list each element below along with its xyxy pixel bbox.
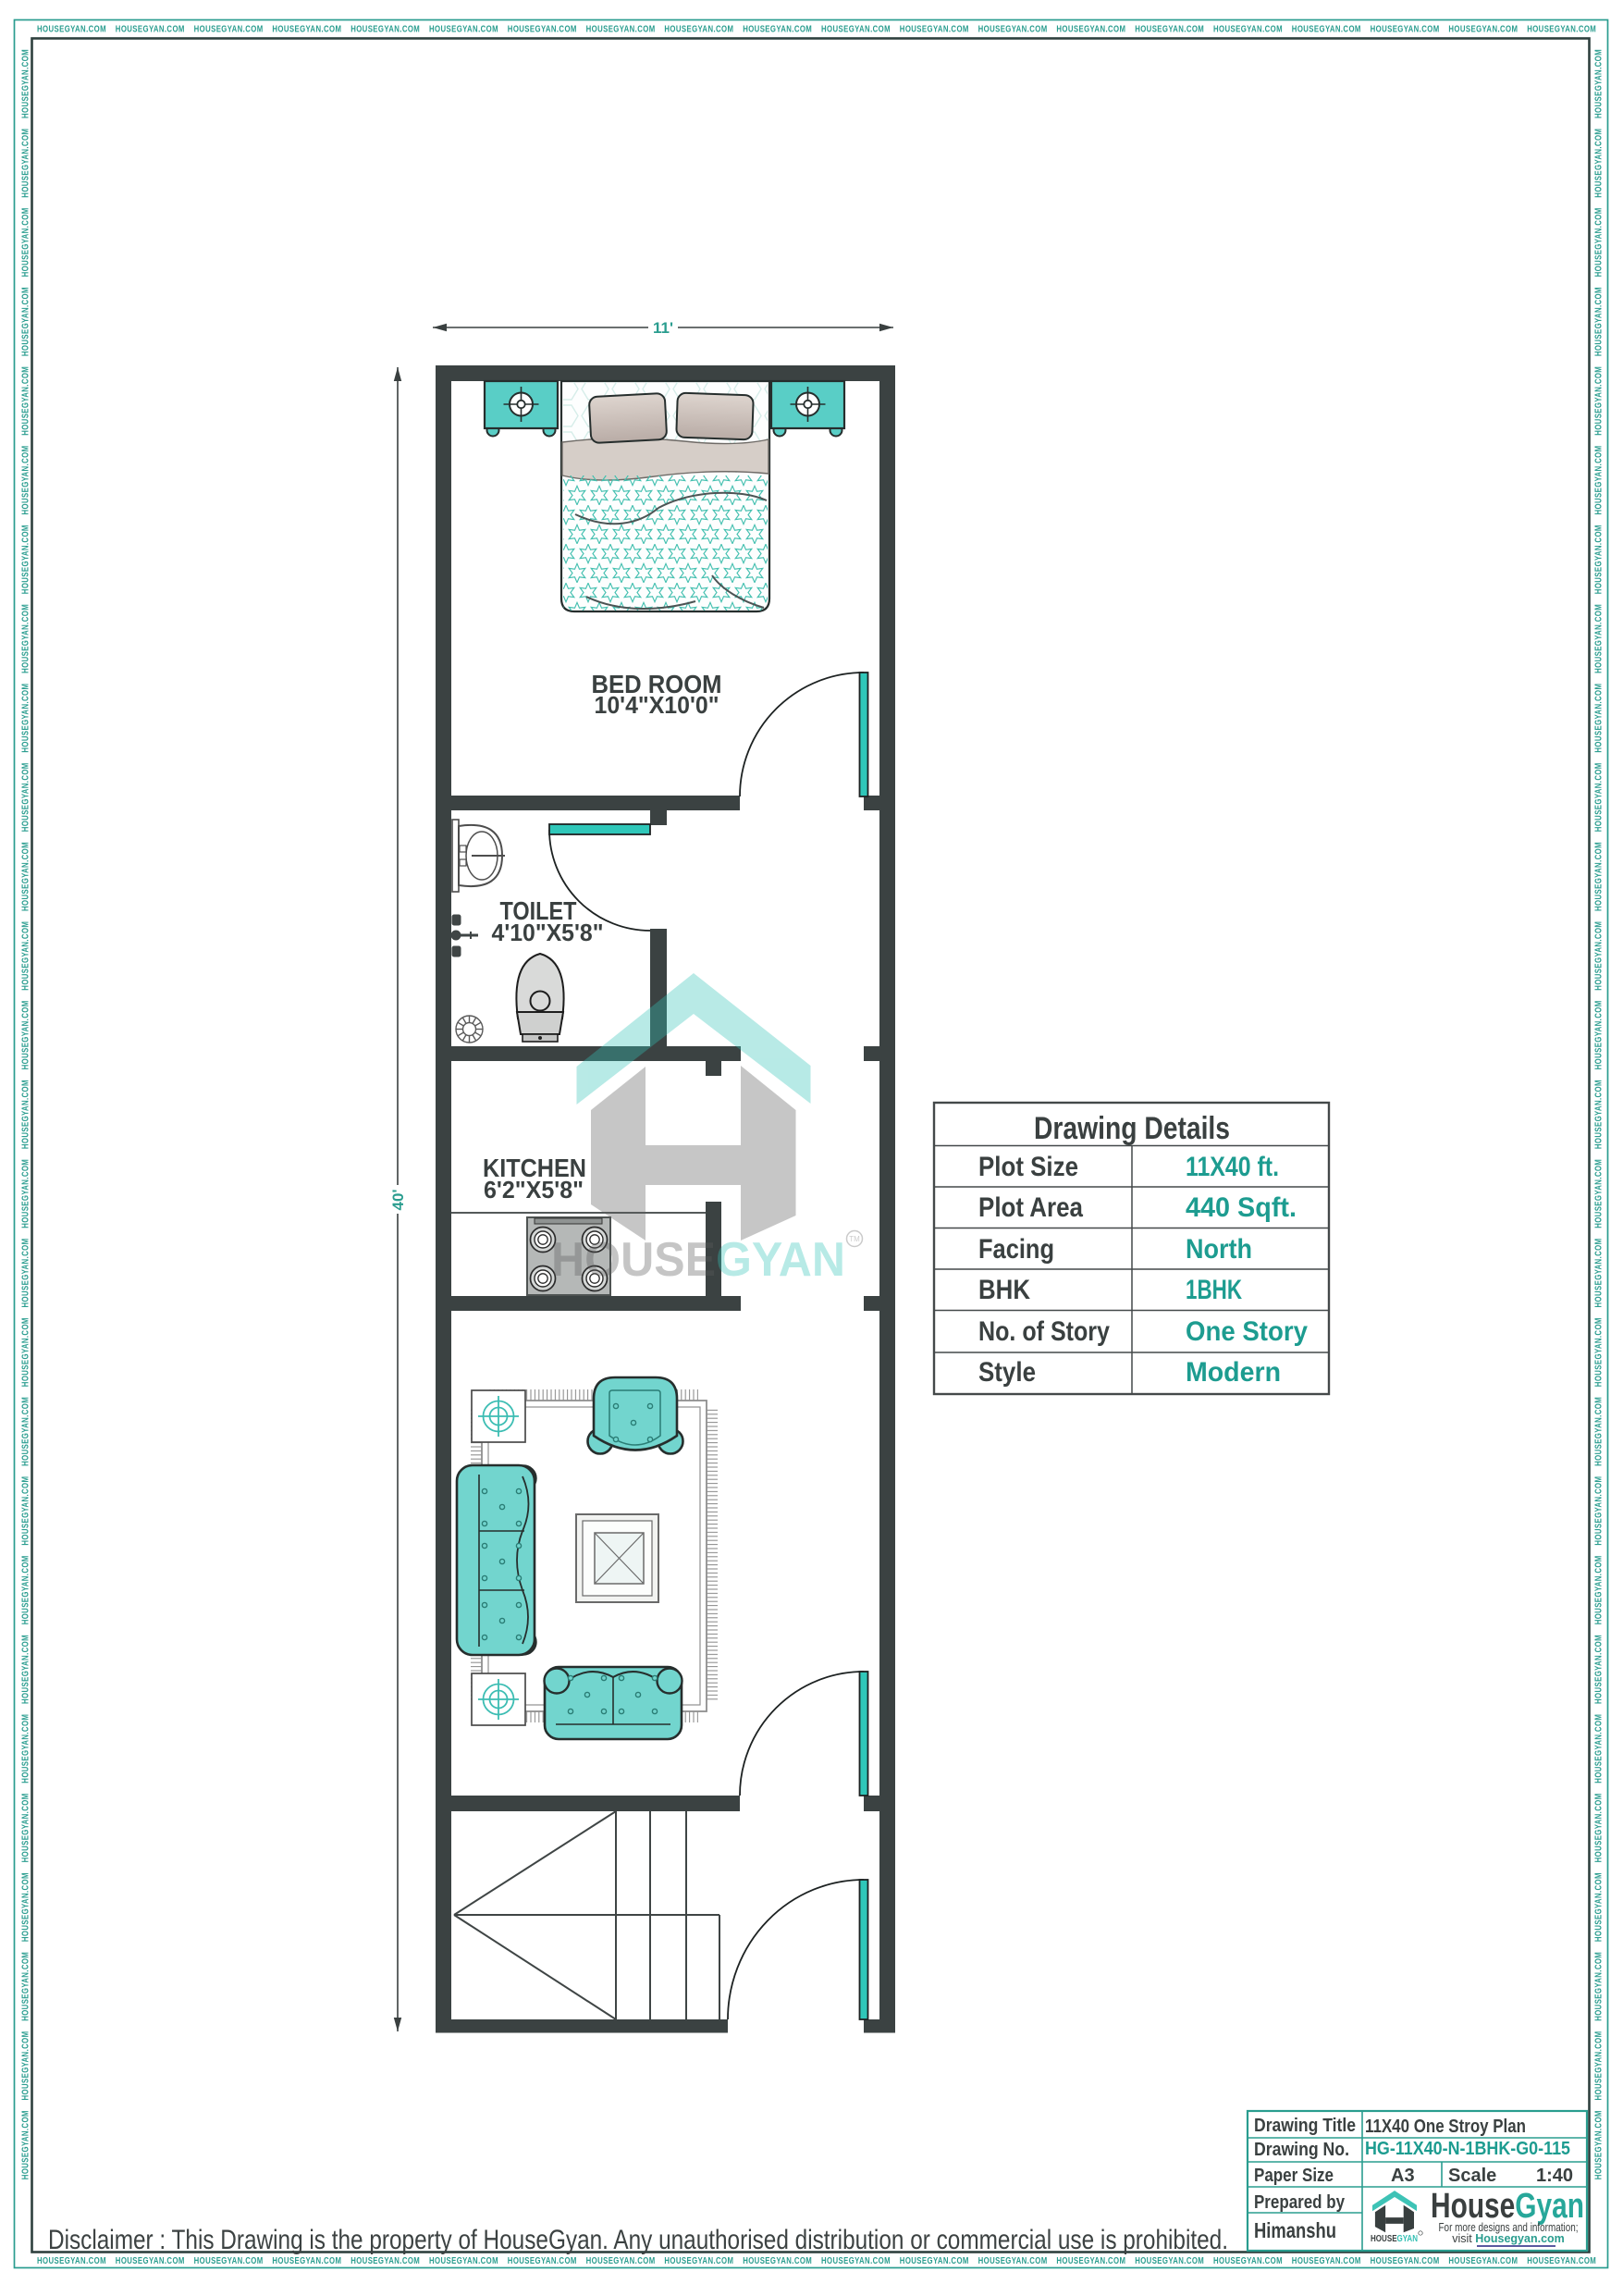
svg-text:HOUSEGYAN.COM: HOUSEGYAN.COM — [37, 2256, 106, 2266]
svg-text:Himanshu: Himanshu — [1254, 2218, 1336, 2242]
svg-text:HOUSEGYAN.COM: HOUSEGYAN.COM — [21, 1317, 31, 1387]
svg-text:Drawing Details: Drawing Details — [1034, 1111, 1230, 1146]
svg-text:HOUSEGYAN.COM: HOUSEGYAN.COM — [1135, 25, 1204, 35]
svg-text:HOUSEGYAN.COM: HOUSEGYAN.COM — [1371, 25, 1440, 35]
svg-text:HOUSEGYAN.COM: HOUSEGYAN.COM — [1594, 1952, 1605, 2021]
svg-text:HOUSEGYAN.COM: HOUSEGYAN.COM — [1594, 604, 1605, 673]
svg-text:HOUSEGYAN.COM: HOUSEGYAN.COM — [37, 25, 106, 35]
svg-text:HOUSEGYAN.COM: HOUSEGYAN.COM — [1594, 49, 1605, 118]
svg-text:HOUSEGYAN.COM: HOUSEGYAN.COM — [1594, 2031, 1605, 2101]
svg-text:HOUSEGYAN.COM: HOUSEGYAN.COM — [21, 1080, 31, 1149]
svg-text:HOUSEGYAN.COM: HOUSEGYAN.COM — [1594, 207, 1605, 277]
svg-text:HOUSEGYAN.COM: HOUSEGYAN.COM — [586, 2256, 656, 2266]
svg-text:HOUSEGYAN.COM: HOUSEGYAN.COM — [1594, 1080, 1605, 1149]
svg-text:HOUSEGYAN.COM: HOUSEGYAN.COM — [1594, 2110, 1605, 2179]
svg-text:HOUSEGYAN.COM: HOUSEGYAN.COM — [1594, 1872, 1605, 1942]
svg-text:HOUSEGYAN.COM: HOUSEGYAN.COM — [1056, 2256, 1125, 2266]
svg-text:North: North — [1186, 1234, 1252, 1265]
svg-text:HOUSEGYAN.COM: HOUSEGYAN.COM — [1371, 2256, 1440, 2266]
svg-text:Scale: Scale — [1448, 2166, 1496, 2186]
svg-text:HOUSEGYAN.COM: HOUSEGYAN.COM — [743, 25, 812, 35]
svg-text:HOUSEGYAN.COM: HOUSEGYAN.COM — [1594, 1159, 1605, 1228]
svg-text:HOUSEGYAN.COM: HOUSEGYAN.COM — [21, 1476, 31, 1546]
svg-text:HouseGyan: HouseGyan — [1431, 2187, 1584, 2226]
svg-text:HOUSEGYAN.COM: HOUSEGYAN.COM — [1594, 366, 1605, 436]
svg-text:11X40 ft.: 11X40 ft. — [1186, 1152, 1279, 1182]
svg-text:HOUSEGYAN.COM: HOUSEGYAN.COM — [978, 2256, 1048, 2266]
svg-text:HOUSEGYAN.COM: HOUSEGYAN.COM — [21, 762, 31, 832]
svg-text:Plot Area: Plot Area — [978, 1192, 1083, 1223]
svg-text:1BHK: 1BHK — [1186, 1275, 1242, 1305]
svg-text:HOUSEGYAN.COM: HOUSEGYAN.COM — [350, 25, 420, 35]
svg-text:HOUSEGYAN.COM: HOUSEGYAN.COM — [21, 129, 31, 198]
svg-text:HOUSEGYAN.COM: HOUSEGYAN.COM — [664, 2256, 733, 2266]
svg-text:HOUSEGYAN.COM: HOUSEGYAN.COM — [194, 25, 264, 35]
svg-text:HOUSEGYAN.COM: HOUSEGYAN.COM — [21, 1635, 31, 1704]
svg-text:HOUSEGYAN.COM: HOUSEGYAN.COM — [350, 2256, 420, 2266]
svg-text:HOUSEGYAN.COM: HOUSEGYAN.COM — [21, 2110, 31, 2179]
svg-text:Prepared by: Prepared by — [1254, 2192, 1346, 2213]
svg-text:HOUSEGYAN.COM: HOUSEGYAN.COM — [586, 25, 656, 35]
svg-text:HOUSEGYAN.COM: HOUSEGYAN.COM — [116, 25, 185, 35]
svg-text:HOUSEGYAN.COM: HOUSEGYAN.COM — [21, 1793, 31, 1862]
svg-text:HOUSEGYAN.COM: HOUSEGYAN.COM — [21, 446, 31, 515]
svg-text:HOUSEGYAN.COM: HOUSEGYAN.COM — [1292, 2256, 1361, 2266]
svg-text:1:40: 1:40 — [1536, 2166, 1573, 2186]
svg-text:HOUSEGYAN.COM: HOUSEGYAN.COM — [21, 366, 31, 436]
svg-text:6'2"X5'8": 6'2"X5'8" — [484, 1176, 584, 1204]
svg-text:HOUSEGYAN.COM: HOUSEGYAN.COM — [664, 25, 733, 35]
svg-text:HOUSEGYAN: HOUSEGYAN — [1371, 2233, 1418, 2244]
svg-text:HOUSEGYAN.COM: HOUSEGYAN.COM — [1594, 1239, 1605, 1308]
svg-text:40': 40' — [389, 1190, 407, 1211]
svg-text:HG-11X40-N-1BHK-G0-115: HG-11X40-N-1BHK-G0-115 — [1365, 2139, 1570, 2159]
svg-text:Style: Style — [978, 1357, 1036, 1388]
svg-text:HOUSEGYAN.COM: HOUSEGYAN.COM — [21, 1872, 31, 1942]
svg-text:HOUSEGYAN.COM: HOUSEGYAN.COM — [508, 25, 577, 35]
svg-text:HOUSEGYAN.COM: HOUSEGYAN.COM — [429, 2256, 498, 2266]
svg-text:HOUSEGYAN.COM: HOUSEGYAN.COM — [21, 1397, 31, 1466]
svg-text:HOUSEGYAN.COM: HOUSEGYAN.COM — [21, 1952, 31, 2021]
svg-text:HOUSEGYAN.COM: HOUSEGYAN.COM — [1594, 921, 1605, 991]
svg-text:HOUSEGYAN.COM: HOUSEGYAN.COM — [21, 1239, 31, 1308]
svg-text:HOUSEGYAN.COM: HOUSEGYAN.COM — [194, 2256, 264, 2266]
svg-text:HOUSEGYAN.COM: HOUSEGYAN.COM — [1448, 2256, 1518, 2266]
svg-text:HOUSEGYAN.COM: HOUSEGYAN.COM — [1448, 25, 1518, 35]
svg-text:HOUSEGYAN.COM: HOUSEGYAN.COM — [1594, 525, 1605, 594]
svg-text:HOUSEGYAN.COM: HOUSEGYAN.COM — [21, 604, 31, 673]
svg-text:HOUSEGYAN.COM: HOUSEGYAN.COM — [21, 287, 31, 356]
svg-text:HOUSEGYAN.COM: HOUSEGYAN.COM — [900, 25, 969, 35]
svg-text:440 Sqft.: 440 Sqft. — [1186, 1192, 1297, 1223]
svg-text:HOUSEGYAN.COM: HOUSEGYAN.COM — [21, 842, 31, 911]
svg-text:HOUSEGYAN.COM: HOUSEGYAN.COM — [1594, 684, 1605, 753]
svg-text:HOUSEGYAN.COM: HOUSEGYAN.COM — [743, 2256, 812, 2266]
svg-text:HOUSEGYAN.COM: HOUSEGYAN.COM — [900, 2256, 969, 2266]
svg-text:HOUSEGYAN.COM: HOUSEGYAN.COM — [1135, 2256, 1204, 2266]
svg-text:TM: TM — [849, 1235, 860, 1243]
svg-text:Paper Size: Paper Size — [1254, 2166, 1334, 2186]
svg-text:HOUSEGYAN.COM: HOUSEGYAN.COM — [21, 49, 31, 118]
svg-text:11X40 One Stroy Plan: 11X40 One Stroy Plan — [1365, 2117, 1526, 2137]
svg-text:11': 11' — [653, 319, 673, 337]
svg-text:HOUSEGYAN.COM: HOUSEGYAN.COM — [1527, 25, 1596, 35]
svg-text:Drawing Title: Drawing Title — [1254, 2116, 1356, 2136]
svg-text:HOUSEGYAN.COM: HOUSEGYAN.COM — [1594, 1317, 1605, 1387]
svg-text:HOUSEGYAN.COM: HOUSEGYAN.COM — [1594, 1397, 1605, 1466]
svg-text:A3: A3 — [1391, 2166, 1415, 2186]
svg-text:10'4"X10'0": 10'4"X10'0" — [595, 691, 719, 719]
svg-text:HOUSEGYAN.COM: HOUSEGYAN.COM — [1527, 2256, 1596, 2266]
svg-text:Modern: Modern — [1186, 1357, 1281, 1388]
svg-text:HOUSEGYAN.COM: HOUSEGYAN.COM — [1213, 25, 1283, 35]
svg-text:HOUSEGYAN.COM: HOUSEGYAN.COM — [1056, 25, 1125, 35]
svg-text:visit Housegyan.com: visit Housegyan.com — [1452, 2232, 1565, 2245]
svg-text:Disclaimer : This Drawing is t: Disclaimer : This Drawing is the propert… — [48, 2225, 1228, 2255]
svg-text:HOUSEGYAN.COM: HOUSEGYAN.COM — [21, 2031, 31, 2101]
svg-text:No. of Story: No. of Story — [978, 1316, 1110, 1347]
svg-text:HOUSEGYAN.COM: HOUSEGYAN.COM — [21, 921, 31, 991]
svg-text:HOUSEGYAN.COM: HOUSEGYAN.COM — [1594, 129, 1605, 198]
svg-text:HOUSEGYAN.COM: HOUSEGYAN.COM — [21, 684, 31, 753]
svg-text:One Story: One Story — [1186, 1316, 1308, 1347]
svg-text:HOUSEGYAN: HOUSEGYAN — [551, 1233, 845, 1287]
svg-text:Plot Size: Plot Size — [978, 1152, 1078, 1182]
svg-text:HOUSEGYAN.COM: HOUSEGYAN.COM — [1292, 25, 1361, 35]
svg-text:HOUSEGYAN.COM: HOUSEGYAN.COM — [1594, 1635, 1605, 1704]
svg-text:HOUSEGYAN.COM: HOUSEGYAN.COM — [272, 2256, 341, 2266]
svg-text:HOUSEGYAN.COM: HOUSEGYAN.COM — [821, 2256, 891, 2266]
svg-text:HOUSEGYAN.COM: HOUSEGYAN.COM — [272, 25, 341, 35]
svg-text:HOUSEGYAN.COM: HOUSEGYAN.COM — [21, 525, 31, 594]
svg-text:HOUSEGYAN.COM: HOUSEGYAN.COM — [1594, 1476, 1605, 1546]
svg-text:HOUSEGYAN.COM: HOUSEGYAN.COM — [1594, 1000, 1605, 1069]
svg-text:HOUSEGYAN.COM: HOUSEGYAN.COM — [1213, 2256, 1283, 2266]
svg-text:4'10"X5'8": 4'10"X5'8" — [492, 919, 604, 946]
svg-text:HOUSEGYAN.COM: HOUSEGYAN.COM — [1594, 842, 1605, 911]
svg-text:HOUSEGYAN.COM: HOUSEGYAN.COM — [1594, 1714, 1605, 1784]
svg-text:HOUSEGYAN.COM: HOUSEGYAN.COM — [978, 25, 1048, 35]
svg-text:HOUSEGYAN.COM: HOUSEGYAN.COM — [1594, 762, 1605, 832]
svg-text:HOUSEGYAN.COM: HOUSEGYAN.COM — [21, 1000, 31, 1069]
svg-text:HOUSEGYAN.COM: HOUSEGYAN.COM — [821, 25, 891, 35]
svg-text:HOUSEGYAN.COM: HOUSEGYAN.COM — [21, 1159, 31, 1228]
svg-text:HOUSEGYAN.COM: HOUSEGYAN.COM — [508, 2256, 577, 2266]
svg-text:Drawing No.: Drawing No. — [1254, 2140, 1349, 2160]
svg-text:HOUSEGYAN.COM: HOUSEGYAN.COM — [1594, 446, 1605, 515]
svg-text:HOUSEGYAN.COM: HOUSEGYAN.COM — [116, 2256, 185, 2266]
svg-text:BHK: BHK — [978, 1275, 1030, 1305]
svg-text:HOUSEGYAN.COM: HOUSEGYAN.COM — [429, 25, 498, 35]
svg-text:HOUSEGYAN.COM: HOUSEGYAN.COM — [21, 1555, 31, 1624]
svg-text:HOUSEGYAN.COM: HOUSEGYAN.COM — [1594, 287, 1605, 356]
svg-text:HOUSEGYAN.COM: HOUSEGYAN.COM — [21, 207, 31, 277]
svg-text:Facing: Facing — [978, 1234, 1054, 1265]
svg-text:HOUSEGYAN.COM: HOUSEGYAN.COM — [1594, 1793, 1605, 1862]
svg-text:HOUSEGYAN.COM: HOUSEGYAN.COM — [1594, 1555, 1605, 1624]
svg-text:HOUSEGYAN.COM: HOUSEGYAN.COM — [21, 1714, 31, 1784]
